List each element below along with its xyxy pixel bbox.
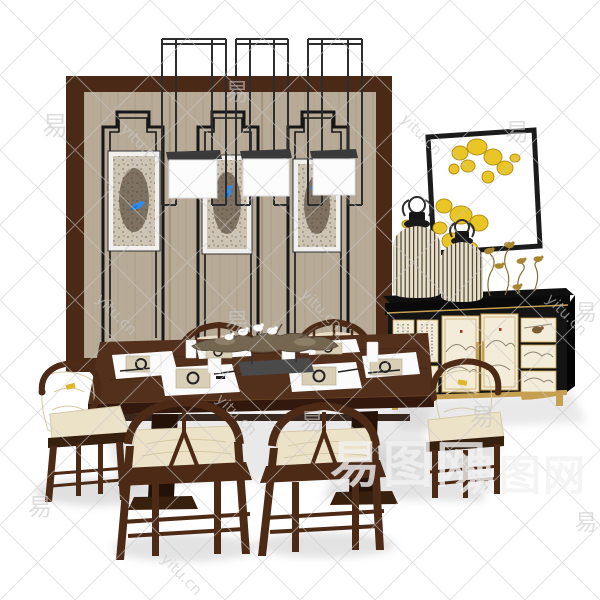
front-chair-right-shadow [255, 532, 395, 558]
scene-svg: yitu.cn yitu.cn yitu.cn yitu.cn yitu.cn … [0, 0, 600, 600]
screen-artwork-1 [108, 151, 160, 251]
front-chair-left-shadow [113, 534, 257, 562]
sideboard-foot-right [556, 392, 563, 406]
pendant-shade-2 [243, 159, 289, 196]
pendant-shade-3 [313, 159, 355, 195]
render-stage: yitu.cn yitu.cn yitu.cn yitu.cn yitu.cn … [0, 0, 600, 600]
door-handle-right [482, 341, 485, 361]
door-handle-left [476, 342, 479, 362]
sideboard-drawers [521, 318, 556, 392]
pendant-shade-1 [169, 160, 217, 198]
sideboard-side-face [567, 295, 575, 392]
